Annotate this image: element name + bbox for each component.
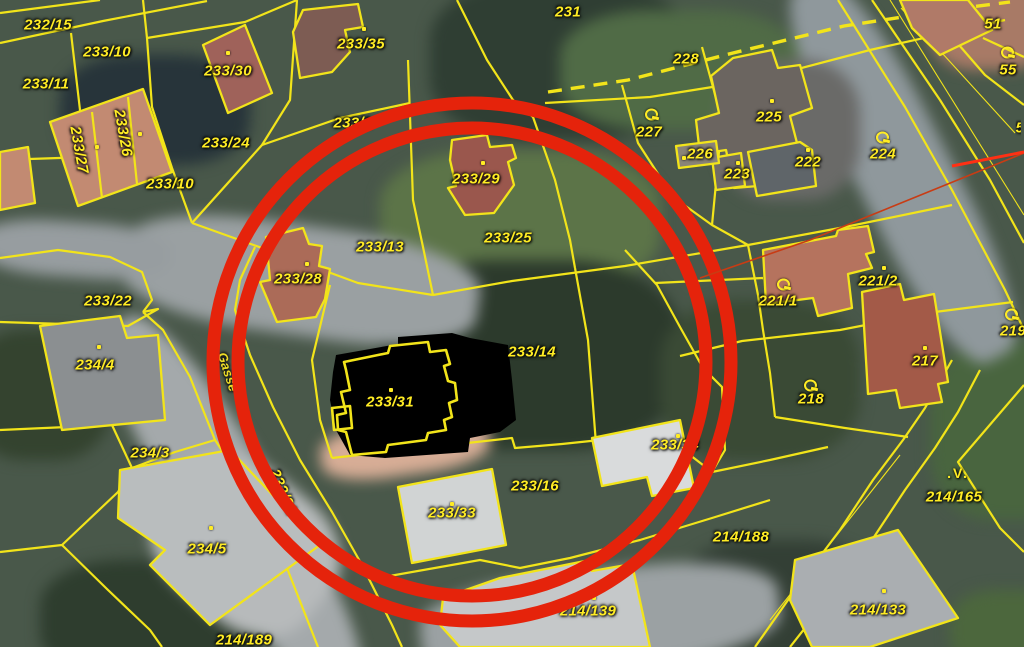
parcel-label: 233/10 (83, 44, 131, 61)
parcel-label: 234/4 (75, 357, 114, 374)
land-use-symbol (1001, 47, 1013, 58)
parcel-label: 234/5 (187, 541, 226, 558)
building-point-dot (682, 156, 686, 160)
land-use-symbol (804, 380, 816, 391)
street-label: Gasse (215, 350, 242, 393)
parcel-label: 224 (870, 146, 896, 163)
building-point-dot (736, 161, 740, 165)
parcel-label: 226 (687, 146, 713, 163)
parcel-label: 233/29 (452, 171, 500, 188)
building-point-dot (226, 51, 230, 55)
building-point-dot (806, 148, 810, 152)
building-point-dot (95, 145, 99, 149)
parcel-label: 214/188 (713, 529, 769, 546)
parcel-label: 214/139 (560, 603, 616, 620)
parcel-label: 233/34 (651, 437, 699, 454)
parcel-label: 233/22 (84, 293, 132, 310)
parcel-label: 219 (1000, 323, 1024, 340)
cadastral-map-canvas[interactable]: 232/15233/10233/11233/30233/27233/26233/… (0, 0, 1024, 647)
parcel-label: 233/10 (146, 176, 194, 193)
building-point-dot (481, 161, 485, 165)
parcel-label: 218 (798, 391, 824, 408)
parcel-label: 55 (999, 62, 1016, 79)
parcel-label: 233/27 (66, 125, 91, 175)
building-point-dot (97, 345, 101, 349)
parcel-label: 214/165 (926, 489, 982, 506)
parcel-label: 233/11 (23, 76, 70, 93)
parcel-label: 231 (555, 4, 581, 21)
parcel-label: 51 (984, 16, 1001, 33)
land-use-v-symbol: .V. (947, 465, 969, 481)
parcel-label: 217 (912, 353, 938, 370)
parcel-label: 5 (1016, 120, 1024, 137)
land-use-symbol (876, 132, 888, 143)
parcel-label: 233/16 (511, 478, 559, 495)
parcel-label: 221/1 (758, 293, 797, 310)
parcel-label: 227 (636, 124, 662, 141)
parcel-label: 233/30 (204, 63, 252, 80)
parcel-labels-layer: 232/15233/10233/11233/30233/27233/26233/… (0, 0, 1024, 647)
parcel-label: 214/189 (216, 632, 272, 647)
parcel-label: 228 (673, 51, 699, 68)
parcel-label: 233/14 (508, 344, 556, 361)
parcel-label: 225 (756, 109, 782, 126)
parcel-label: 214/133 (850, 602, 906, 619)
parcel-label: 232/15 (24, 17, 72, 34)
building-point-dot (450, 502, 454, 506)
parcel-label: 233/28 (274, 271, 322, 288)
parcel-label: 234/3 (130, 445, 169, 462)
building-point-dot (770, 99, 774, 103)
parcel-label: 221/2 (858, 273, 897, 290)
parcel-label: 223 (724, 166, 750, 183)
parcel-label: 233/24 (202, 135, 250, 152)
building-point-dot (389, 388, 393, 392)
building-point-dot (882, 266, 886, 270)
parcel-label: 233/1 (333, 115, 372, 132)
parcel-label: 233/13 (356, 239, 404, 256)
building-point-dot (676, 434, 680, 438)
parcel-label: 233/35 (337, 36, 385, 53)
parcel-label: 233/25 (484, 230, 532, 247)
land-use-symbol (645, 109, 657, 120)
parcel-label: 222 (795, 154, 821, 171)
land-use-symbol (777, 279, 789, 290)
building-point-dot (923, 346, 927, 350)
building-point-dot (305, 262, 309, 266)
building-point-dot (362, 27, 366, 31)
building-point-dot (592, 596, 596, 600)
parcel-label: 233/33 (428, 505, 476, 522)
parcel-label: 233/21 (266, 467, 300, 518)
building-point-dot (209, 526, 213, 530)
building-point-dot (882, 589, 886, 593)
building-point-dot (138, 132, 142, 136)
parcel-label: 233/26 (110, 108, 135, 158)
land-use-symbol (1005, 309, 1017, 320)
parcel-label: 233/31 (366, 394, 414, 411)
